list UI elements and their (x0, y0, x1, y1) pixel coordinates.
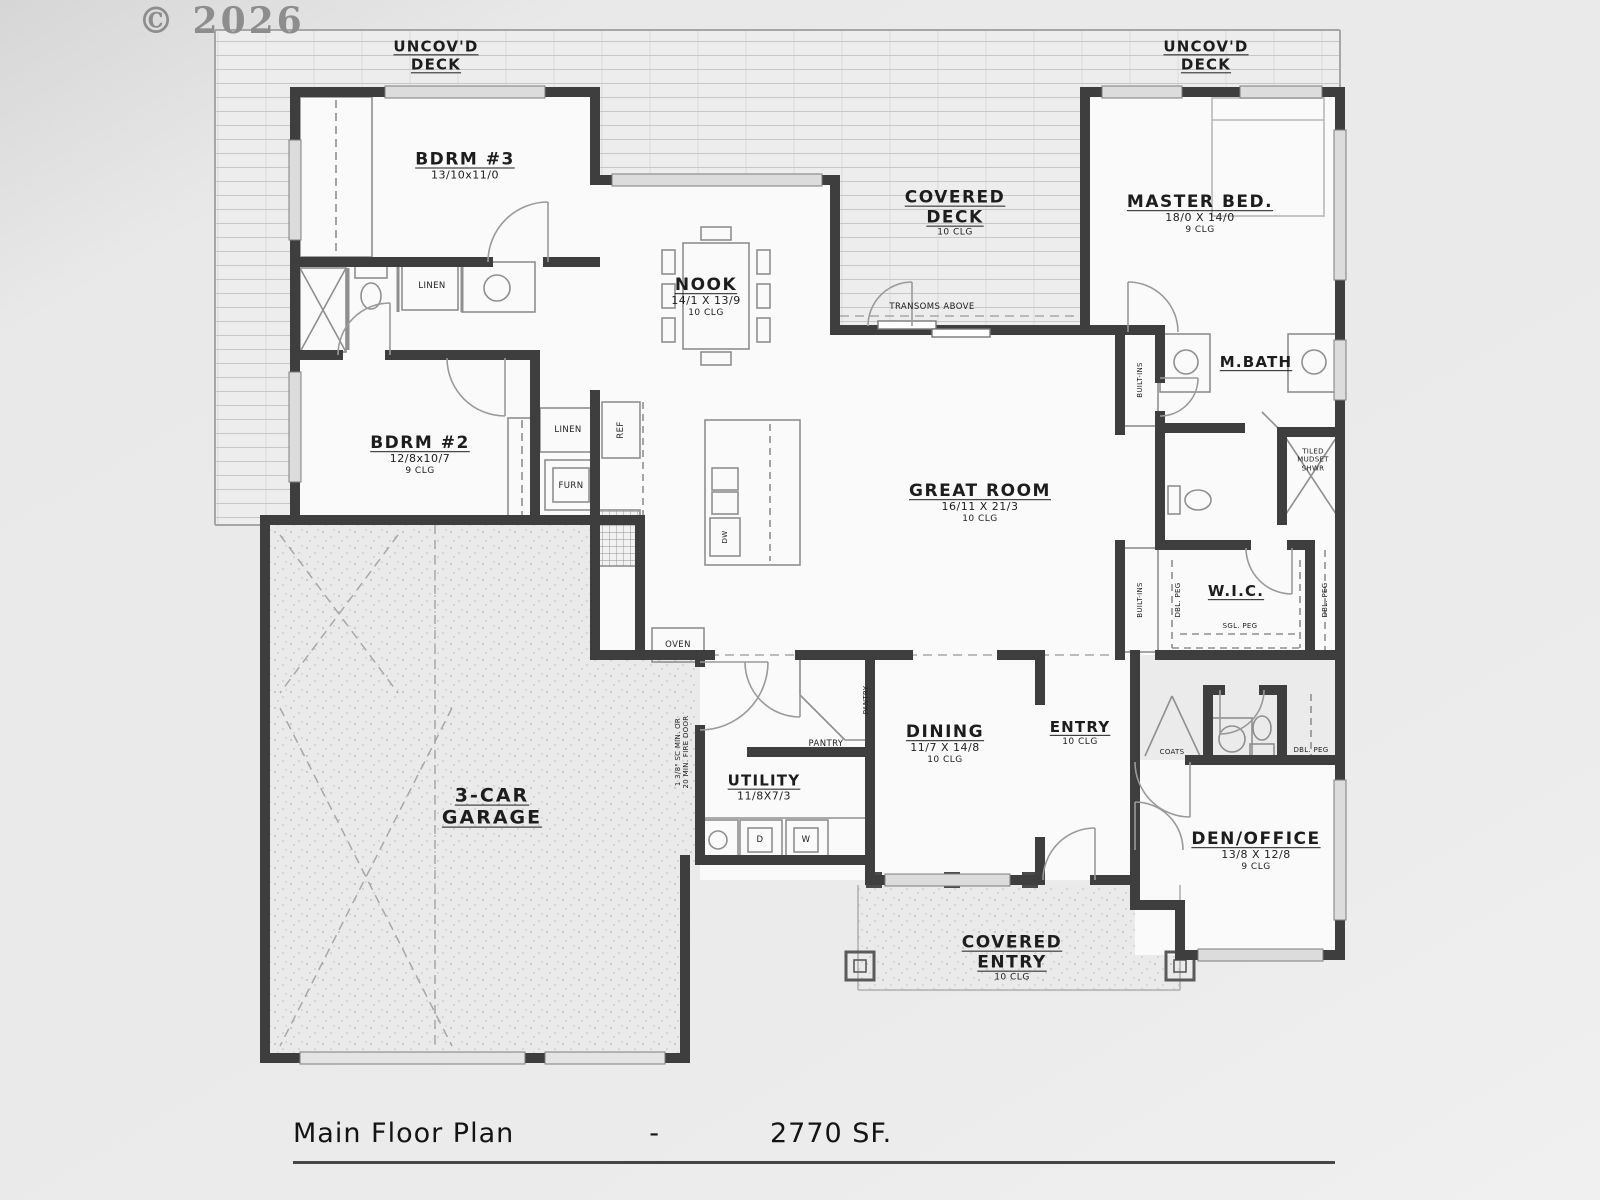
room-label-master-bed: MASTER BED. 18/0 X 14/0 9 CLG (1127, 192, 1273, 236)
shower-note: MUDSET (1297, 456, 1329, 464)
room-label-dining: DINING 11/7 X 14/8 10 CLG (906, 722, 984, 766)
room-name: UNCOV'D (1163, 38, 1248, 56)
room-clg: 9 CLG (405, 466, 434, 477)
dishwasher-label: DW (721, 531, 729, 544)
dbl-peg-label-hall: DBL. PEG (1293, 746, 1328, 754)
room-name: BDRM #2 (370, 433, 470, 453)
furnace-label: FURN (559, 481, 584, 491)
linen-label-hall: LINEN (554, 425, 581, 435)
transoms-note: TRANSOMS ABOVE (889, 302, 974, 312)
dryer-label: D (757, 835, 764, 845)
room-dims: 14/1 X 13/9 (671, 295, 740, 308)
room-name: DECK (926, 208, 983, 228)
room-label-uncovd-deck-right: UNCOV'D DECK (1163, 38, 1248, 73)
room-name: UNCOV'D (393, 38, 478, 56)
fire-door-line: 20 MIN. FIRE DOOR (682, 716, 690, 789)
room-dims: 13/10x11/0 (431, 170, 499, 183)
room-name: ENTRY (1050, 719, 1111, 737)
room-clg: 9 CLG (1185, 225, 1214, 236)
plan-title: Main Floor Plan (293, 1118, 514, 1149)
room-dims: 13/8 X 12/8 (1221, 849, 1290, 862)
room-label-bdrm3: BDRM #3 13/10x11/0 (415, 149, 515, 182)
room-dims: 11/8X7/3 (737, 790, 791, 803)
room-name: NOOK (675, 275, 737, 295)
room-name: UTILITY (728, 773, 801, 791)
linen-label-bath: LINEN (418, 281, 445, 291)
room-label-utility: UTILITY 11/8X7/3 (728, 773, 801, 804)
sgl-peg-label: SGL. PEG (1223, 622, 1258, 630)
fire-door-note: 1 3/8" SC MIN. OR 20 MIN. FIRE DOOR (674, 716, 691, 789)
shower-note: TILED (1302, 448, 1324, 456)
room-label-uncovd-deck-left: UNCOV'D DECK (393, 38, 478, 73)
dbl-peg-label-wic: DBL. PEG (1174, 582, 1182, 617)
plan-area: 2770 SF. (770, 1118, 892, 1149)
room-name: DEN/OFFICE (1191, 829, 1320, 849)
refrigerator-label: REF (616, 421, 626, 438)
tiled-shower-label: TILED MUDSET SHWR (1297, 448, 1329, 473)
dbl-peg-label-right: DBL. PEG (1321, 582, 1329, 617)
room-label-covered-entry: COVERED ENTRY 10 CLG (962, 933, 1063, 984)
room-label-mbath: M.BATH (1220, 354, 1293, 372)
floor-plan-drawing (0, 0, 1600, 1200)
room-clg: 10 CLG (927, 755, 963, 766)
room-name: BDRM #3 (415, 149, 515, 169)
room-name: DECK (411, 56, 461, 74)
room-name: GREAT ROOM (909, 481, 1051, 501)
pantry-label-vert: PANTRY (862, 686, 870, 715)
builtins-label-upper: BUILT-INS (1136, 362, 1144, 398)
room-label-wic: W.I.C. (1208, 583, 1264, 601)
room-name: COVERED (905, 188, 1006, 208)
room-label-bdrm2: BDRM #2 12/8x10/7 9 CLG (370, 433, 470, 477)
fire-door-line: 1 3/8" SC MIN. OR (674, 718, 682, 786)
room-dims: 11/7 X 14/8 (910, 742, 979, 755)
washer-label: W (802, 835, 811, 845)
plan-title-block: Main Floor Plan - 2770 SF. (293, 1118, 1335, 1164)
room-label-great-room: GREAT ROOM 16/11 X 21/3 10 CLG (909, 481, 1051, 525)
oven-label: OVEN (665, 640, 691, 650)
room-name: DINING (906, 722, 984, 742)
room-dims: 12/8x10/7 (390, 453, 450, 466)
coats-label: COATS (1160, 748, 1185, 756)
room-dims: 16/11 X 21/3 (942, 501, 1019, 514)
room-clg: 9 CLG (1241, 862, 1270, 873)
plan-title-dash: - (649, 1118, 660, 1149)
room-label-den-office: DEN/OFFICE 13/8 X 12/8 9 CLG (1191, 829, 1320, 873)
room-label-entry: ENTRY 10 CLG (1050, 719, 1111, 747)
shower-note: SHWR (1302, 464, 1325, 472)
room-clg: 10 CLG (962, 514, 998, 525)
room-name: MASTER BED. (1127, 192, 1273, 212)
room-clg: 10 CLG (937, 228, 973, 239)
room-name: ENTRY (977, 953, 1046, 973)
pantry-label: PANTRY (809, 739, 844, 749)
copyright-watermark: © 2026 (138, 0, 305, 42)
room-clg: 10 CLG (994, 973, 1030, 984)
room-name: 3-CAR (455, 785, 529, 807)
room-dims: 18/0 X 14/0 (1165, 212, 1234, 225)
room-name: GARAGE (442, 807, 542, 829)
room-clg: 10 CLG (1062, 737, 1098, 748)
room-label-covered-deck: COVERED DECK 10 CLG (905, 188, 1006, 239)
room-name: DECK (1181, 56, 1231, 74)
room-clg: 10 CLG (688, 308, 724, 319)
room-name: COVERED (962, 933, 1063, 953)
room-label-nook: NOOK 14/1 X 13/9 10 CLG (671, 275, 740, 319)
room-label-garage: 3-CAR GARAGE (442, 785, 542, 830)
builtins-label-lower: BUILT-INS (1136, 582, 1144, 618)
